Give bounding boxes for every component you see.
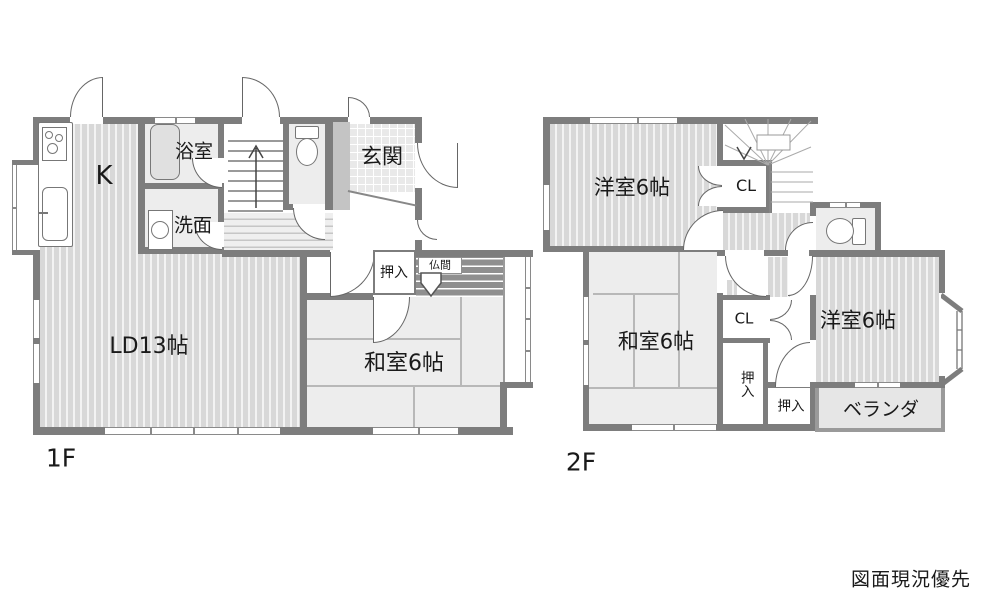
living-door-arc [330,252,375,297]
window [33,300,40,338]
wall-segment [543,117,550,185]
room-label-oshiire-a: 押入 [738,371,752,398]
faucet [38,212,48,214]
floor2-label: 2F [566,450,596,475]
wall-segment [503,382,533,388]
hall-door-arc [788,256,813,296]
wall-segment [764,250,788,256]
wall-segment [810,250,945,257]
window [855,382,900,388]
tatami-line [678,252,680,387]
burner [47,143,58,154]
engawa-divider [503,257,505,382]
door-opening [70,117,103,124]
room-label-oshiire-b: 押入 [778,400,805,414]
washbasin [151,221,169,239]
room-label-entrance: 玄関 [361,147,403,168]
tatami-line [413,385,415,427]
window [543,185,550,230]
toilet-tank [852,218,866,245]
wall-segment [717,250,725,256]
window [590,117,677,124]
tatami-line [593,293,678,295]
door-opening [242,117,280,124]
veranda-wall [941,388,945,432]
small-door-arc [348,97,370,117]
wall-segment [415,250,533,257]
room-label-veranda: ベランダ [843,401,919,420]
wall-segment [939,250,945,293]
wall-segment [325,122,333,210]
western-b-door-arc [775,342,810,387]
window [583,297,589,340]
entrance-step-line [348,190,417,206]
kitchen-sink [42,187,68,241]
burner [45,131,53,139]
room-label-wash: 洗面 [174,217,212,236]
room-label-bath: 浴室 [175,143,213,162]
engawa-window [525,257,531,382]
exterior-door-arc [242,77,280,117]
window [632,424,716,431]
window [583,345,589,385]
closet-bifold-leaf [770,320,792,340]
wall-segment [583,252,589,297]
veranda-wall [815,428,945,432]
window [830,202,860,208]
room-label-cl-a: CL [736,178,756,194]
wall-segment [283,122,289,210]
wall-segment [810,295,816,340]
door-opening [348,117,370,124]
wall-segment [300,250,307,435]
drawing-note: 図面現況優先 [851,571,971,590]
wall-segment [33,250,40,300]
wall-segment [222,250,330,257]
toilet-bowl [296,138,318,166]
window [155,117,195,124]
bay-window [941,288,967,392]
butsuma-arrow [419,272,443,298]
room-label-butsuma: 仏間 [429,260,451,271]
tatami-line [589,387,717,389]
bay-window [12,165,17,250]
room-label-western-b: 洋室6帖 [820,311,896,332]
kitchen-backdoor-arc [70,77,103,117]
floorplan-canvas: K 浴室 洗面 玄関 LD13帖 和室6帖 押入 仏間 1F 洋室6帖 CL 和… [0,0,982,600]
tatami-line [460,297,462,385]
room-label-western-a: 洋室6帖 [594,178,670,199]
toilet-bowl [826,218,854,244]
room-label-living: LD13帖 [109,336,188,358]
floor1-label: 1F [46,446,76,471]
room-label-oshiire1: 押入 [380,266,408,280]
wall-segment [500,382,507,435]
burner [55,134,63,142]
window [373,427,458,435]
room-label-washitsu2: 和室6帖 [618,332,694,353]
closet-bifold-leaf [770,300,792,320]
window [33,344,40,383]
room-label-washitsu1: 和室6帖 [364,353,444,375]
wall-segment [717,293,723,431]
room-label-cl-b: CL [735,312,754,327]
window [105,427,280,435]
room-label-kitchen: K [95,163,112,189]
stair-up-arrow [247,142,265,212]
stairs-winder [723,117,815,215]
entrance-door-arc [417,143,458,188]
veranda-wall [815,388,819,432]
tatami-line [307,385,503,387]
shoe-cabinet [333,122,350,210]
wall-segment [875,202,881,257]
vestibule-floor [768,257,790,297]
